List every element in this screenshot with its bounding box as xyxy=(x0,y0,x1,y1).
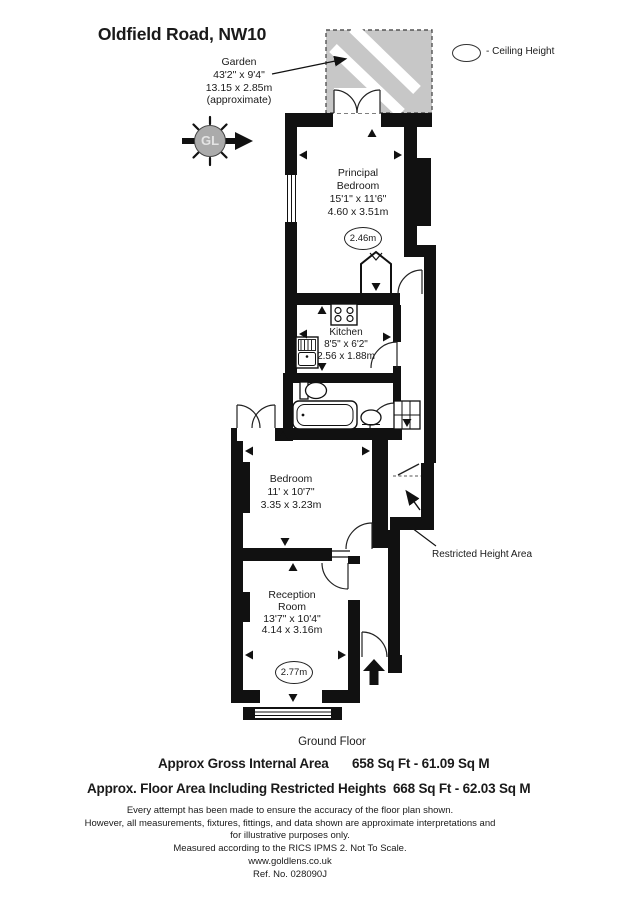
reception-name-2: Room xyxy=(222,602,362,614)
ceiling-height-legend-label: - Ceiling Height xyxy=(486,46,554,57)
restricted-area-boundary xyxy=(393,464,421,476)
ceiling-height-badge-reception: 2.77m xyxy=(275,661,313,684)
gross-area-value: 658 Sq Ft - 61.09 Sq M xyxy=(352,756,489,771)
bedroom-name: Bedroom xyxy=(221,473,361,486)
floor-label: Ground Floor xyxy=(272,736,392,748)
basin-icon xyxy=(361,410,381,425)
wardrobe-icon xyxy=(361,252,391,294)
disclaimer-line-2: However, all measurements, fixtures, fit… xyxy=(40,818,540,831)
bedroom-imperial: 11' x 10'7" xyxy=(221,486,361,499)
ceiling-height-badge-principal-bedroom: 2.46m xyxy=(344,227,382,250)
reception-metric: 4.14 x 3.16m xyxy=(222,625,362,637)
compass-initials: GL xyxy=(197,133,223,148)
garden-note: (approximate) xyxy=(169,94,309,107)
garden-annotation: Garden 43'2" x 9'4" 13.15 x 2.85m (appro… xyxy=(169,56,309,107)
thin-partition xyxy=(332,551,350,557)
steps-icon xyxy=(394,401,420,429)
room-label-reception: Reception Room 13'7" x 10'4" 4.14 x 3.16… xyxy=(222,590,362,637)
reference-number: Ref. No. 028090J xyxy=(40,869,540,882)
room-label-principal-bedroom: Principal Bedroom 15'1" x 11'6" 4.60 x 3… xyxy=(288,167,428,219)
entrance-arrow-icon xyxy=(363,659,385,685)
restricted-height-label: Restricted Height Area xyxy=(432,549,532,560)
garden-label: Garden xyxy=(169,56,309,69)
bay-window xyxy=(255,709,331,718)
garden-dimensions-imperial: 43'2" x 9'4" xyxy=(169,69,309,82)
room-label-bedroom: Bedroom 11' x 10'7" 3.35 x 3.23m xyxy=(221,473,361,512)
toilet-icon xyxy=(300,382,327,399)
garden-plot xyxy=(326,28,432,113)
restricted-height-arrow xyxy=(407,492,420,510)
bedroom-metric: 3.35 x 3.23m xyxy=(221,499,361,512)
gross-area-label: Approx Gross Internal Area xyxy=(158,756,329,771)
website-text: www.goldlens.co.uk xyxy=(40,856,540,869)
principal-bedroom-imperial: 15'1" x 11'6" xyxy=(288,193,428,206)
restricted-area-total-label: Approx. Floor Area Including Restricted … xyxy=(87,781,386,796)
floor-plan-page: Oldfield Road, NW10 Garden 43'2" x 9'4" … xyxy=(0,0,637,900)
principal-bedroom-metric: 4.60 x 3.51m xyxy=(288,206,428,219)
page-title: Oldfield Road, NW10 xyxy=(82,24,282,45)
disclaimer-block: Every attempt has been made to ensure th… xyxy=(40,805,540,881)
garden-dimensions-metric: 13.15 x 2.85m xyxy=(169,82,309,95)
ceiling-height-legend-ellipse xyxy=(452,44,481,62)
principal-bedroom-name-2: Bedroom xyxy=(288,180,428,193)
kitchen-name: Kitchen xyxy=(286,327,406,339)
kitchen-imperial: 8'5" x 6'2" xyxy=(286,339,406,351)
disclaimer-line-4: Measured according to the RICS IPMS 2. N… xyxy=(40,843,540,856)
restricted-area-total-value: 668 Sq Ft - 62.03 Sq M xyxy=(393,781,530,796)
disclaimer-line-3: for illustrative purposes only. xyxy=(40,830,540,843)
bathtub-icon xyxy=(293,401,357,429)
room-label-kitchen: Kitchen 8'5" x 6'2" 2.56 x 1.88m xyxy=(286,327,406,363)
hob-icon xyxy=(331,304,357,325)
principal-bedroom-name-1: Principal xyxy=(288,167,428,180)
kitchen-metric: 2.56 x 1.88m xyxy=(286,351,406,363)
disclaimer-line-1: Every attempt has been made to ensure th… xyxy=(40,805,540,818)
